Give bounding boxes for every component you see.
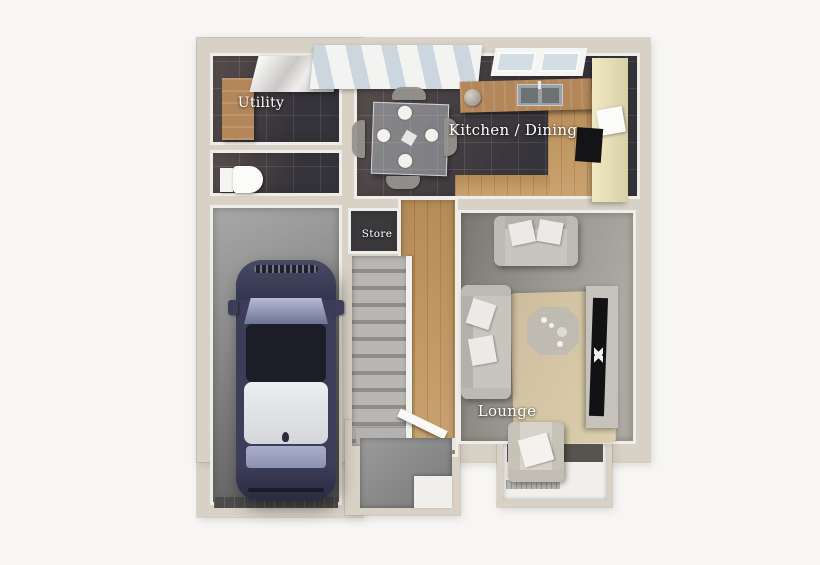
window-pane: [539, 52, 581, 72]
pillow-icon: [518, 432, 555, 467]
kitchen-wood-floor-strip: [455, 175, 550, 196]
table-centerpiece: [401, 130, 417, 146]
plate-icon: [398, 154, 412, 168]
room-label-lounge: Lounge: [457, 402, 557, 420]
sofa-armrest: [461, 388, 511, 399]
floor-plan-canvas: Utility Kitchen / Dining Store Lounge: [0, 0, 820, 565]
oven-icon: [575, 127, 603, 163]
bifold-doors-icon: [310, 45, 483, 89]
tv-stand-cross: [594, 344, 603, 366]
tv-unit: [586, 286, 618, 428]
pillow-icon: [508, 220, 536, 247]
car: [236, 260, 336, 500]
table-item: [541, 317, 547, 323]
room-label-utility: Utility: [211, 95, 311, 111]
car-windshield: [244, 298, 328, 324]
car-taillights: [248, 488, 324, 492]
porch-step: [414, 476, 452, 508]
plate-icon: [398, 106, 412, 120]
car-rear-window: [246, 446, 326, 468]
sofa-armrest: [567, 216, 578, 266]
table-item: [549, 323, 554, 328]
dining-chair: [352, 120, 365, 158]
toilet-icon: [233, 166, 263, 193]
plate-icon: [377, 129, 390, 142]
dining-chair: [386, 176, 420, 189]
toilet-cistern: [220, 168, 233, 192]
sofa-armrest: [461, 285, 511, 296]
sink-bowl: [521, 88, 538, 103]
car-grille: [254, 265, 318, 273]
room-label-store: Store: [352, 228, 402, 240]
room-label-kitchen-dining: Kitchen / Dining: [448, 121, 578, 139]
sofa-back: [494, 216, 578, 229]
plate-icon: [425, 129, 438, 142]
coffee-table: [527, 307, 579, 355]
car-mirror-icon: [228, 300, 238, 315]
pillow-icon: [468, 335, 497, 366]
sink-tap: [538, 81, 541, 89]
pillow-icon: [536, 219, 563, 245]
window-pane: [495, 52, 537, 72]
sink-bowl: [542, 88, 559, 103]
armchair-back: [508, 470, 564, 482]
sofa-armrest: [494, 216, 505, 266]
coffee-maker-icon: [464, 89, 481, 106]
armchair: [508, 422, 564, 482]
kitchen-window-icon: [491, 48, 588, 76]
table-item: [557, 341, 563, 347]
car-antenna-icon: [282, 432, 289, 442]
car-mirror-icon: [334, 300, 344, 315]
kitchen-sink-icon: [517, 84, 563, 106]
car-boot: [236, 468, 336, 500]
dining-table: [371, 102, 449, 177]
dining-chair: [392, 87, 426, 100]
car-roof-glass: [246, 324, 326, 382]
sofa: [494, 216, 578, 266]
sofa: [461, 285, 511, 399]
table-item: [557, 327, 567, 337]
